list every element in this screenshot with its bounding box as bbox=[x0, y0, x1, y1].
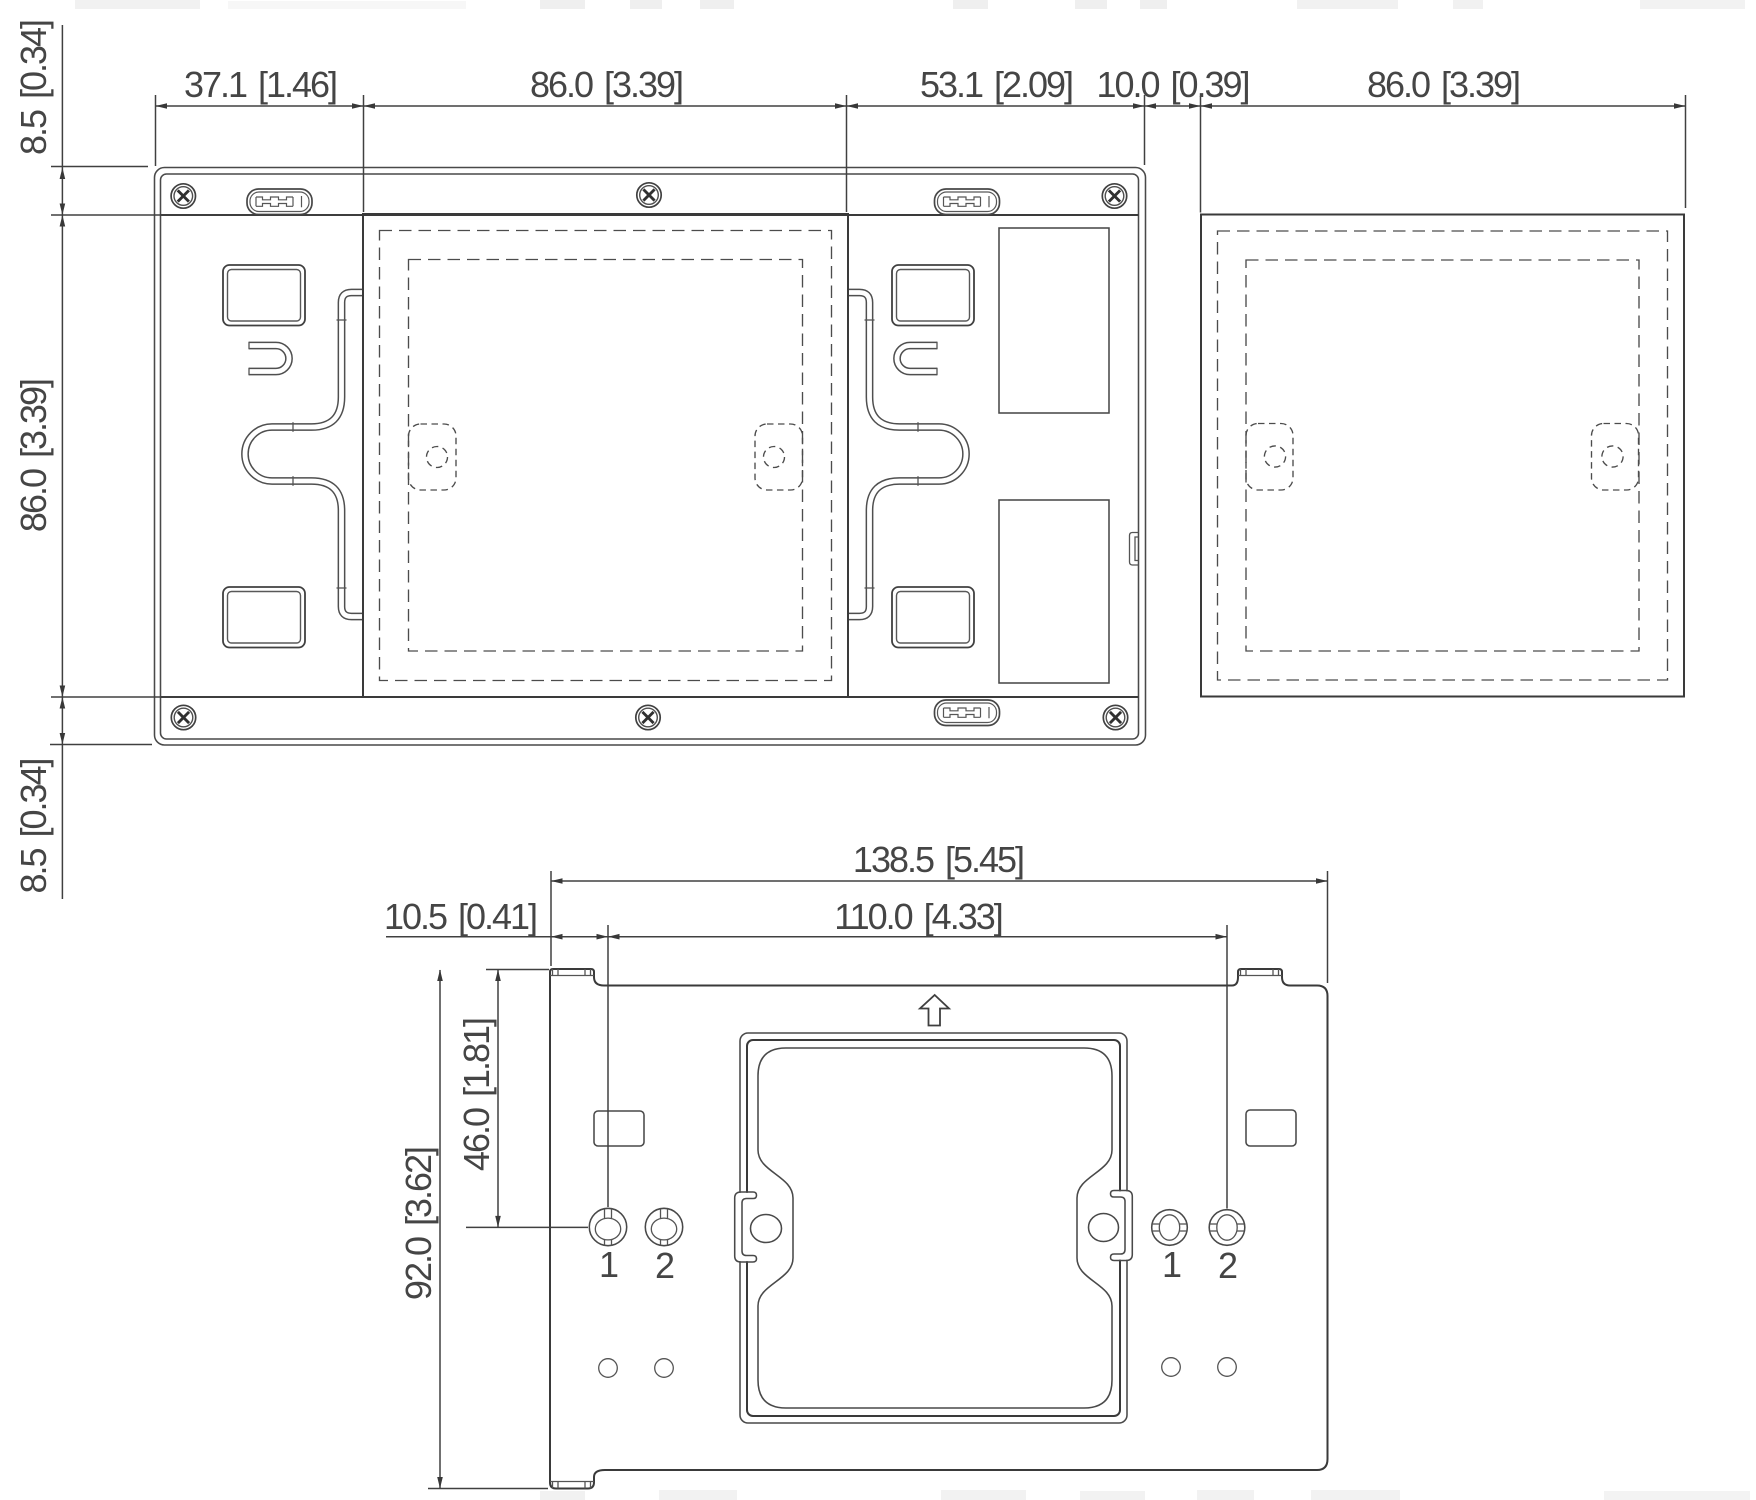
svg-text:1: 1 bbox=[599, 1244, 618, 1285]
svg-text:8.5 [0.34]: 8.5 [0.34] bbox=[13, 21, 54, 155]
svg-text:2: 2 bbox=[655, 1245, 674, 1286]
svg-text:8.5 [0.34]: 8.5 [0.34] bbox=[13, 759, 54, 893]
svg-text:2: 2 bbox=[1218, 1245, 1237, 1286]
svg-text:110.0 [4.33]: 110.0 [4.33] bbox=[834, 896, 1001, 937]
svg-text:37.1 [1.46]: 37.1 [1.46] bbox=[184, 64, 336, 105]
svg-text:1: 1 bbox=[1162, 1244, 1181, 1285]
svg-text:92.0 [3.62]: 92.0 [3.62] bbox=[398, 1148, 439, 1300]
svg-text:138.5 [5.45]: 138.5 [5.45] bbox=[853, 839, 1023, 880]
svg-text:10.0 [0.39]: 10.0 [0.39] bbox=[1096, 64, 1248, 105]
svg-text:10.5 [0.41]: 10.5 [0.41] bbox=[384, 896, 536, 937]
svg-text:46.0 [1.81]: 46.0 [1.81] bbox=[456, 1019, 497, 1171]
svg-text:53.1 [2.09]: 53.1 [2.09] bbox=[920, 64, 1072, 105]
svg-text:86.0 [3.39]: 86.0 [3.39] bbox=[530, 64, 682, 105]
svg-text:86.0 [3.39]: 86.0 [3.39] bbox=[1367, 64, 1519, 105]
svg-text:86.0 [3.39]: 86.0 [3.39] bbox=[13, 380, 54, 532]
